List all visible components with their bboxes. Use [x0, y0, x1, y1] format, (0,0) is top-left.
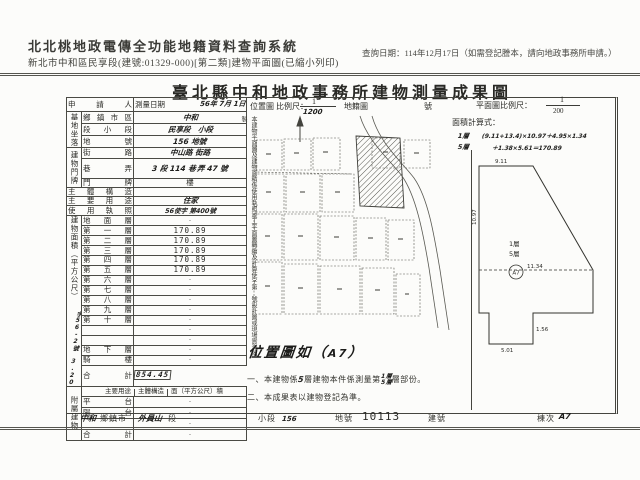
- survey-date-value: 56年 7月 1日: [199, 101, 245, 108]
- street-label: 街路: [82, 148, 134, 159]
- lane-label: 巷弄: [82, 159, 134, 179]
- usage-label: 主要用途: [67, 197, 134, 206]
- floor-row-value: ·: [134, 335, 247, 345]
- footer-building-number-value: 10113: [362, 410, 400, 423]
- location-caption-unit: A7: [327, 347, 349, 360]
- floor-row-label: [82, 335, 134, 345]
- top-rule: [0, 73, 640, 76]
- annex-row-value: ·: [134, 396, 247, 407]
- street-value: 中山路 街路: [170, 149, 211, 157]
- plan-scale-fraction-bar: [546, 105, 580, 106]
- structure-label: 主體構造: [67, 188, 134, 197]
- footer-township-value: 中和: [79, 413, 96, 424]
- footer-township-label: 鄉鎮市: [100, 413, 127, 424]
- plan-dim-mid: 11.34: [527, 264, 543, 270]
- annex-row-label: 平台: [82, 396, 134, 407]
- plan-dim-left: 10.97: [472, 209, 478, 225]
- annex-header-structure: 主體構造: [134, 389, 164, 396]
- floor-row-value: ·: [134, 275, 247, 285]
- floor-row-label: 第八層: [82, 295, 134, 305]
- footer-subsection-label: 小段: [258, 413, 276, 424]
- note-2: 二、本成果表以建物登記為準。: [247, 392, 366, 403]
- floor-row-value: ·: [134, 355, 247, 365]
- floor-row-value: ·: [134, 325, 247, 335]
- floor-row-value: 170.89: [134, 245, 247, 255]
- cadastral-map-label: 地籍圖: [344, 101, 368, 112]
- structure-value: [134, 188, 247, 197]
- plan-outline: [479, 166, 593, 344]
- footer-unit-value: A7: [559, 412, 572, 421]
- floor-row-value: 170.89: [134, 225, 247, 235]
- plan-dim-top: 9.11: [495, 159, 507, 165]
- usage-value: 住家: [182, 197, 198, 205]
- system-title: 北北桃地政電傳全功能地籍資料查詢系統: [28, 36, 298, 55]
- building-floor-plan: 9.11 11.34 1.56 5.01 10.97 1層 5層 A7: [471, 150, 613, 410]
- door-number-value: 樓: [134, 179, 247, 188]
- query-date-note: 查詢日期：114年12月17日（如需登記謄本，請向地政事務所申請。）: [362, 47, 617, 59]
- floor-row-value: ·: [134, 315, 247, 325]
- floor-row-label: 第二層: [82, 235, 134, 245]
- area-license-hand-note: 字56-2號 3.20: [67, 311, 81, 386]
- note-1-part-c: 層部份。: [392, 375, 426, 384]
- cadastral-map-number-suffix: 號: [424, 101, 432, 112]
- floor-row-value: ·: [134, 345, 247, 355]
- building-info-table: 申請人 測量日期 56年 7月 1日 基地坐落 鄉鎮市區 中和 段小段 民享段 …: [66, 97, 247, 441]
- lot-number-label: 地號: [82, 136, 134, 148]
- floor-row-value: 170.89: [134, 255, 247, 265]
- annex-header-usage: 主要用途: [105, 389, 131, 396]
- floor-row-label: 第四層: [82, 255, 134, 265]
- footer-section-label: 段: [168, 413, 177, 424]
- location-map-sketch: [252, 114, 468, 342]
- location-scale-numerator: 1: [312, 97, 316, 106]
- location-caption-prefix: 位置圖如（: [247, 342, 329, 362]
- floor-total-label: 合計: [82, 365, 134, 386]
- floor-row-value: ·: [134, 216, 247, 226]
- lane-value-line2: 弄 47 號: [197, 164, 229, 173]
- plan-unit-mark: A7: [512, 271, 520, 277]
- location-caption-suffix: ）: [347, 342, 365, 362]
- plan-scale-denominator: 200: [553, 107, 564, 115]
- footer-section-value: 外員山: [137, 413, 162, 424]
- footer-building-number-label: 建號: [428, 413, 446, 424]
- annex-total-value: ·: [134, 429, 247, 440]
- license-label: 使用執照: [67, 206, 134, 216]
- applicant-label: 申請人: [67, 98, 134, 112]
- section-label: 段小段: [82, 124, 134, 136]
- note-1-part-b: 層建物本件係測量第: [304, 375, 381, 384]
- footer-lot-label: 地號: [335, 413, 353, 424]
- floor-row-label: 第七層: [82, 285, 134, 295]
- subject-parcel-hatched: [356, 136, 404, 208]
- plan-dim-notch-bottom: 5.01: [501, 348, 513, 354]
- lot-number-value: 156 地號: [173, 138, 207, 146]
- note-1-part-a: 一、本建物係: [247, 375, 298, 384]
- location-map-label: 位置圖: [250, 101, 274, 112]
- floor-row-label: 第三層: [82, 245, 134, 255]
- formula-line-1: (9.11+13.4)×10.97＋4.95×1.34: [482, 131, 588, 140]
- floor-total-value: 854.45: [133, 370, 171, 380]
- district-label: 鄉鎮市區: [82, 112, 134, 124]
- floor-row-label: 第十層: [82, 315, 134, 325]
- plan-floor-from: 1層: [509, 240, 520, 248]
- floor-row-label: 第六層: [82, 275, 134, 285]
- plan-dim-notch: 1.56: [536, 327, 549, 333]
- section-value: 民享段 小段: [167, 126, 213, 134]
- note-1: 一、本建物係5層建物本件係測量第1層5層層部份。: [247, 374, 426, 386]
- plan-floor-to: 5層: [509, 250, 520, 258]
- floor-row-label: 地面層: [82, 216, 134, 226]
- location-scale-fraction-bar: [300, 106, 336, 107]
- floor-row-value: ·: [134, 295, 247, 305]
- lane-value-line1: 3 段 114 巷: [151, 164, 196, 173]
- note-1-fraction-bottom: 5層: [380, 380, 392, 386]
- floor-row-value: ·: [134, 285, 247, 295]
- door-number-label: 門牌: [82, 179, 134, 188]
- annex-header-area: 面（平方公尺）積: [167, 389, 223, 396]
- survey-date-label: 測量日期: [135, 101, 165, 109]
- footer-unit-label: 棟次: [537, 413, 555, 424]
- floor-row-value: 170.89: [134, 235, 247, 245]
- system-subtitle: 新北市中和區民享段(建號:01329-000)[第二類]建物平面圖(已縮小列印): [28, 55, 339, 69]
- floor-row-label: 第五層: [82, 265, 134, 275]
- note-1-hand-floors: 5: [298, 375, 305, 384]
- floor-row-label: 地下層: [82, 345, 134, 355]
- annex-group-label: 附屬建物: [67, 387, 82, 441]
- north-arrow-icon: [297, 117, 303, 142]
- floor-row-value: 170.89: [134, 265, 247, 275]
- location-caption: 位置圖如（A7）: [248, 342, 364, 362]
- area-group-label: 建物面積（平方公尺） 字56-2號 3.20: [67, 216, 82, 387]
- license-value: 56使字 第400號: [164, 208, 216, 215]
- floor-row-label: 第九層: [82, 305, 134, 315]
- district-value: 中和: [182, 114, 198, 122]
- floor-row-label: [82, 325, 134, 335]
- plan-scale-numerator: 1: [560, 95, 564, 104]
- door-group-label: 建物門牌: [67, 148, 82, 188]
- plan-scale-label: 平面圖比例尺：: [476, 100, 532, 111]
- site-group-label: 基地坐落: [67, 112, 82, 148]
- document-viewer-page: 北北桃地政電傳全功能地籍資料查詢系統 新北市中和區民享段(建號:01329-00…: [0, 0, 640, 480]
- floor-row-value: ·: [134, 305, 247, 315]
- bottom-rule: [0, 427, 640, 430]
- floor-row-label: 第一層: [82, 225, 134, 235]
- floor-row-label: 騎樓: [82, 355, 134, 365]
- annex-total-label: 合計: [82, 429, 134, 440]
- area-group-label-text: 建物面積（平方公尺）: [70, 216, 79, 301]
- footer-lot-value: 156: [282, 415, 297, 423]
